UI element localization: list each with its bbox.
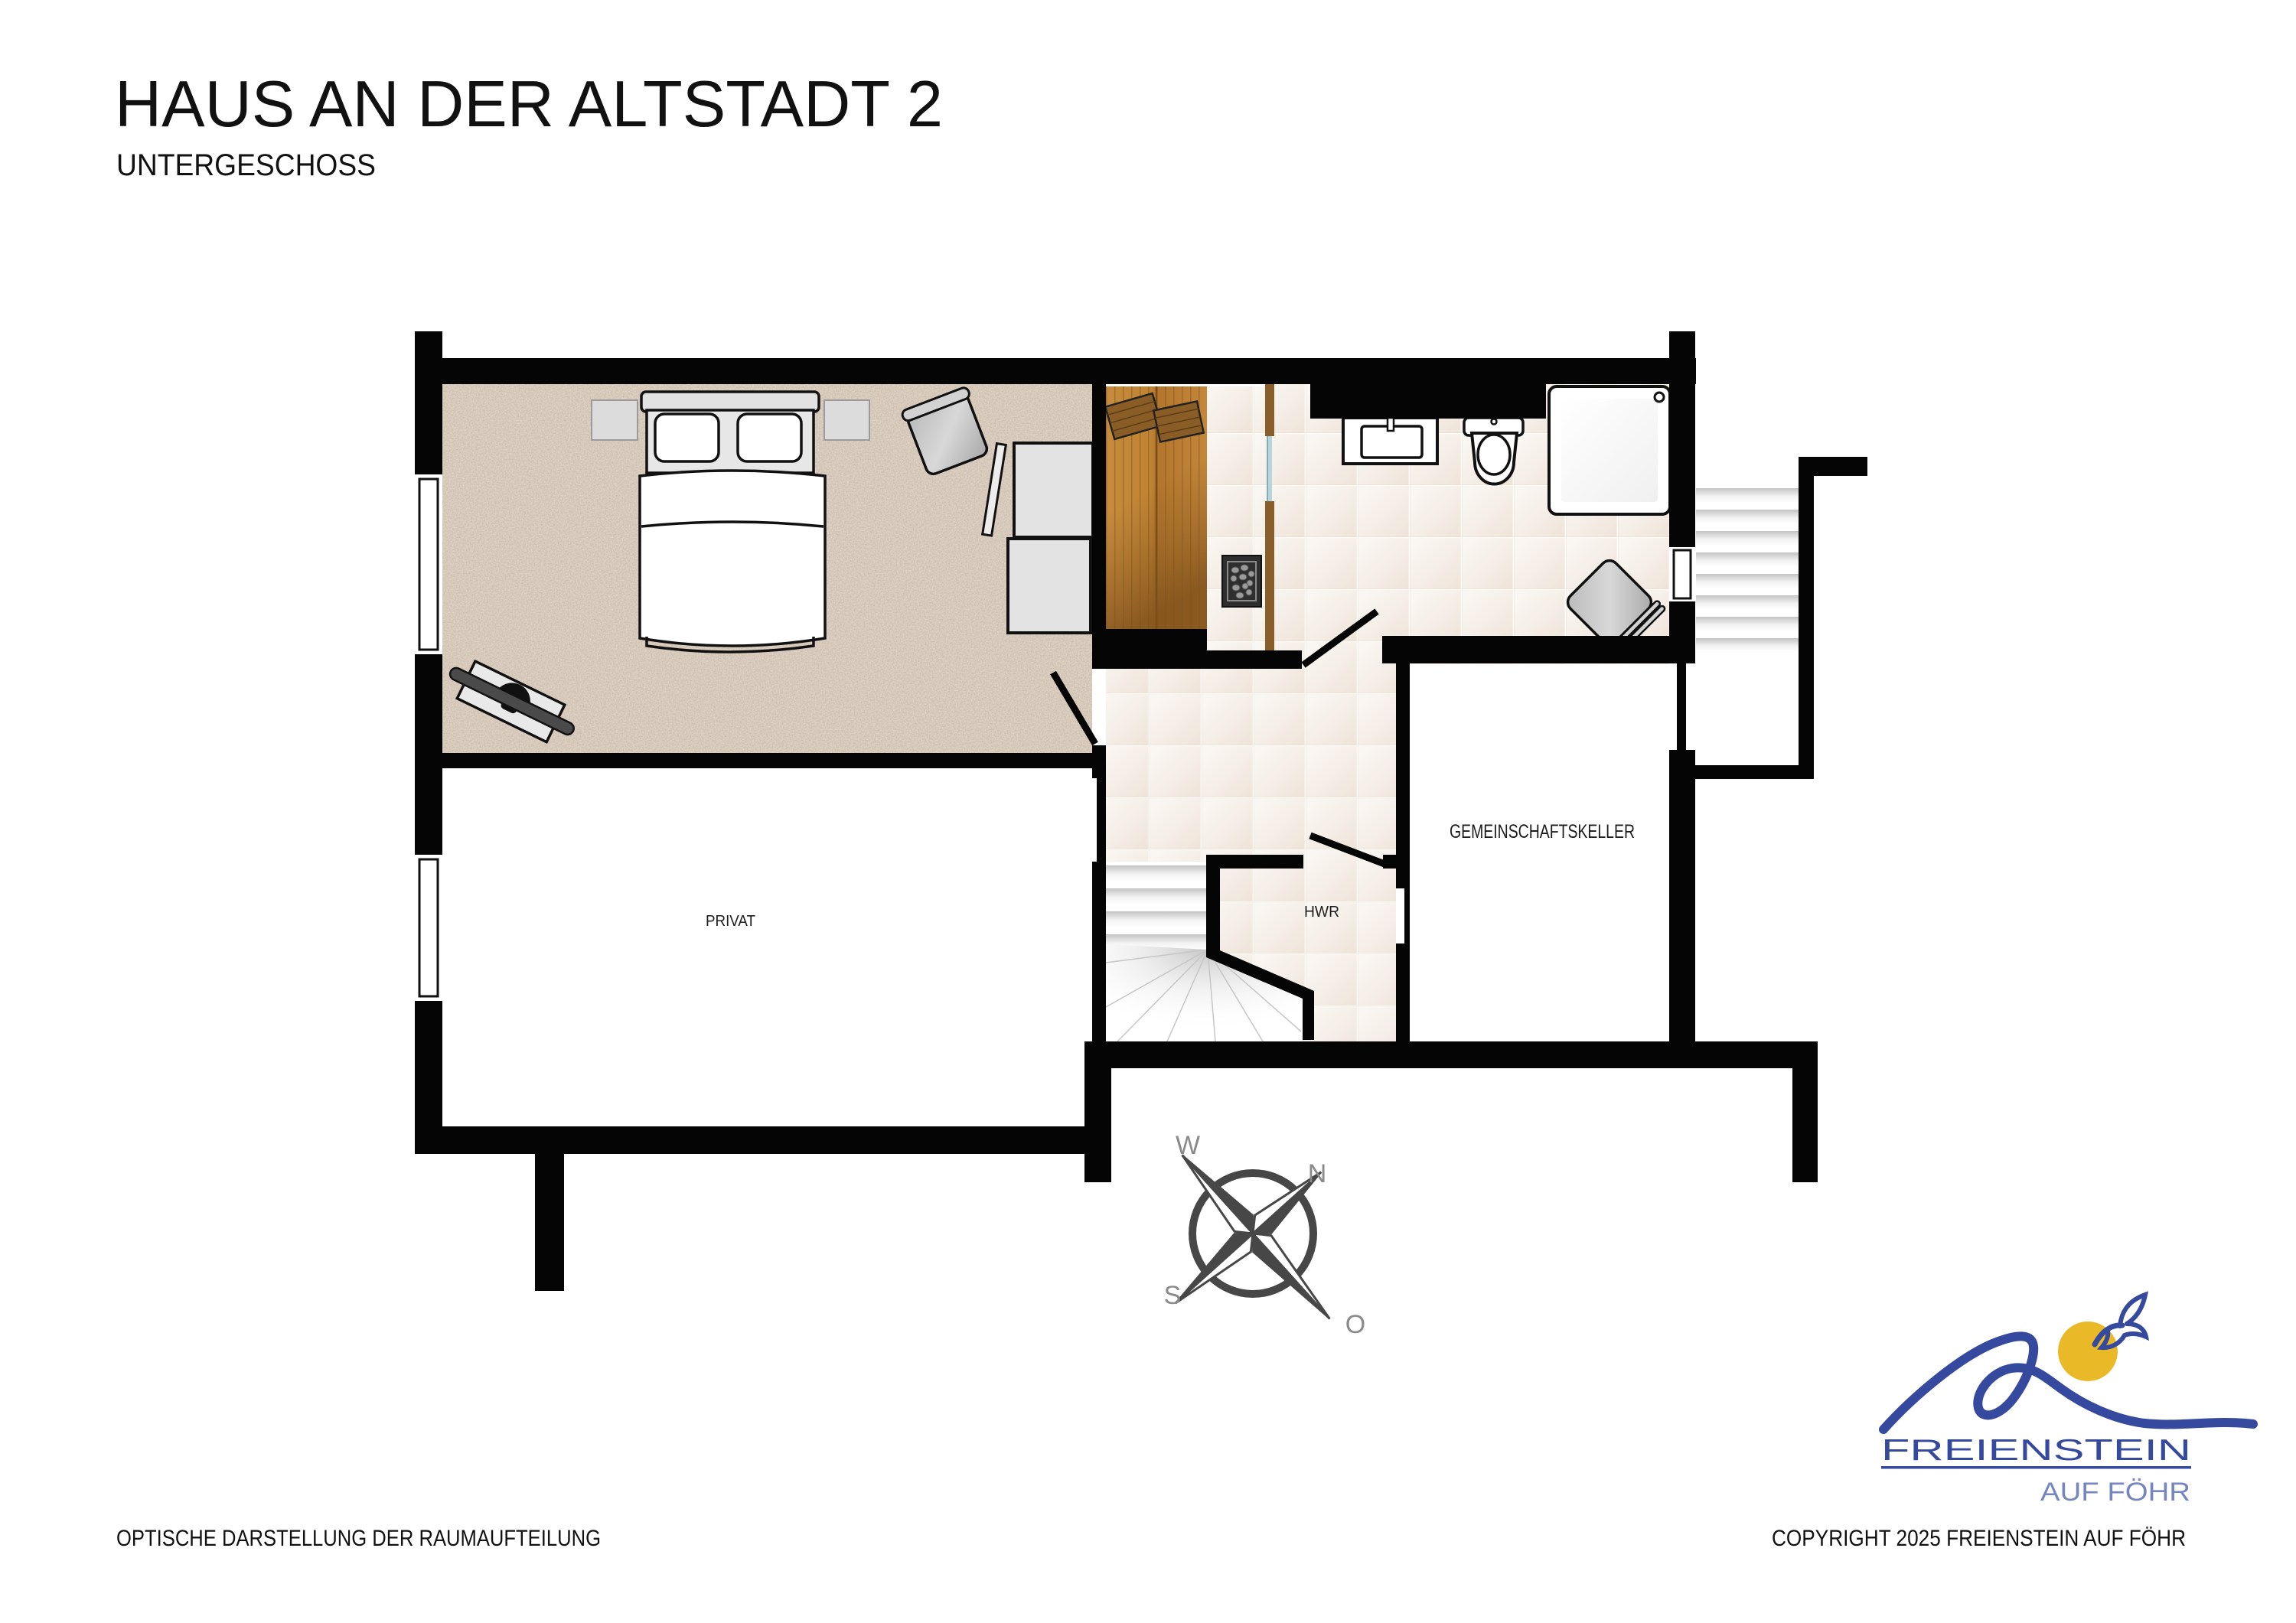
svg-text:W: W	[1176, 1131, 1200, 1160]
svg-text:S: S	[1164, 1281, 1182, 1310]
svg-text:N: N	[1308, 1159, 1327, 1188]
svg-text:FREIENSTEIN: FREIENSTEIN	[1881, 1434, 2191, 1467]
svg-text:O: O	[1345, 1310, 1365, 1339]
svg-text:HWR: HWR	[1304, 904, 1339, 921]
svg-text:OPTISCHE DARSTELLUNG DER RAUMA: OPTISCHE DARSTELLUNG DER RAUMAUFTEILUNG	[116, 1526, 601, 1551]
svg-text:HAUS AN DER ALTSTADT 2: HAUS AN DER ALTSTADT 2	[115, 68, 943, 141]
svg-text:COPYRIGHT 2025 FREIENSTEIN AUF: COPYRIGHT 2025 FREIENSTEIN AUF FÖHR	[1772, 1526, 2186, 1551]
svg-text:GEMEINSCHAFTSKELLER: GEMEINSCHAFTSKELLER	[1450, 821, 1635, 842]
svg-text:AUF FÖHR: AUF FÖHR	[2040, 1478, 2190, 1507]
svg-text:PRIVAT: PRIVAT	[706, 913, 755, 930]
svg-text:UNTERGESCHOSS: UNTERGESCHOSS	[116, 148, 376, 182]
